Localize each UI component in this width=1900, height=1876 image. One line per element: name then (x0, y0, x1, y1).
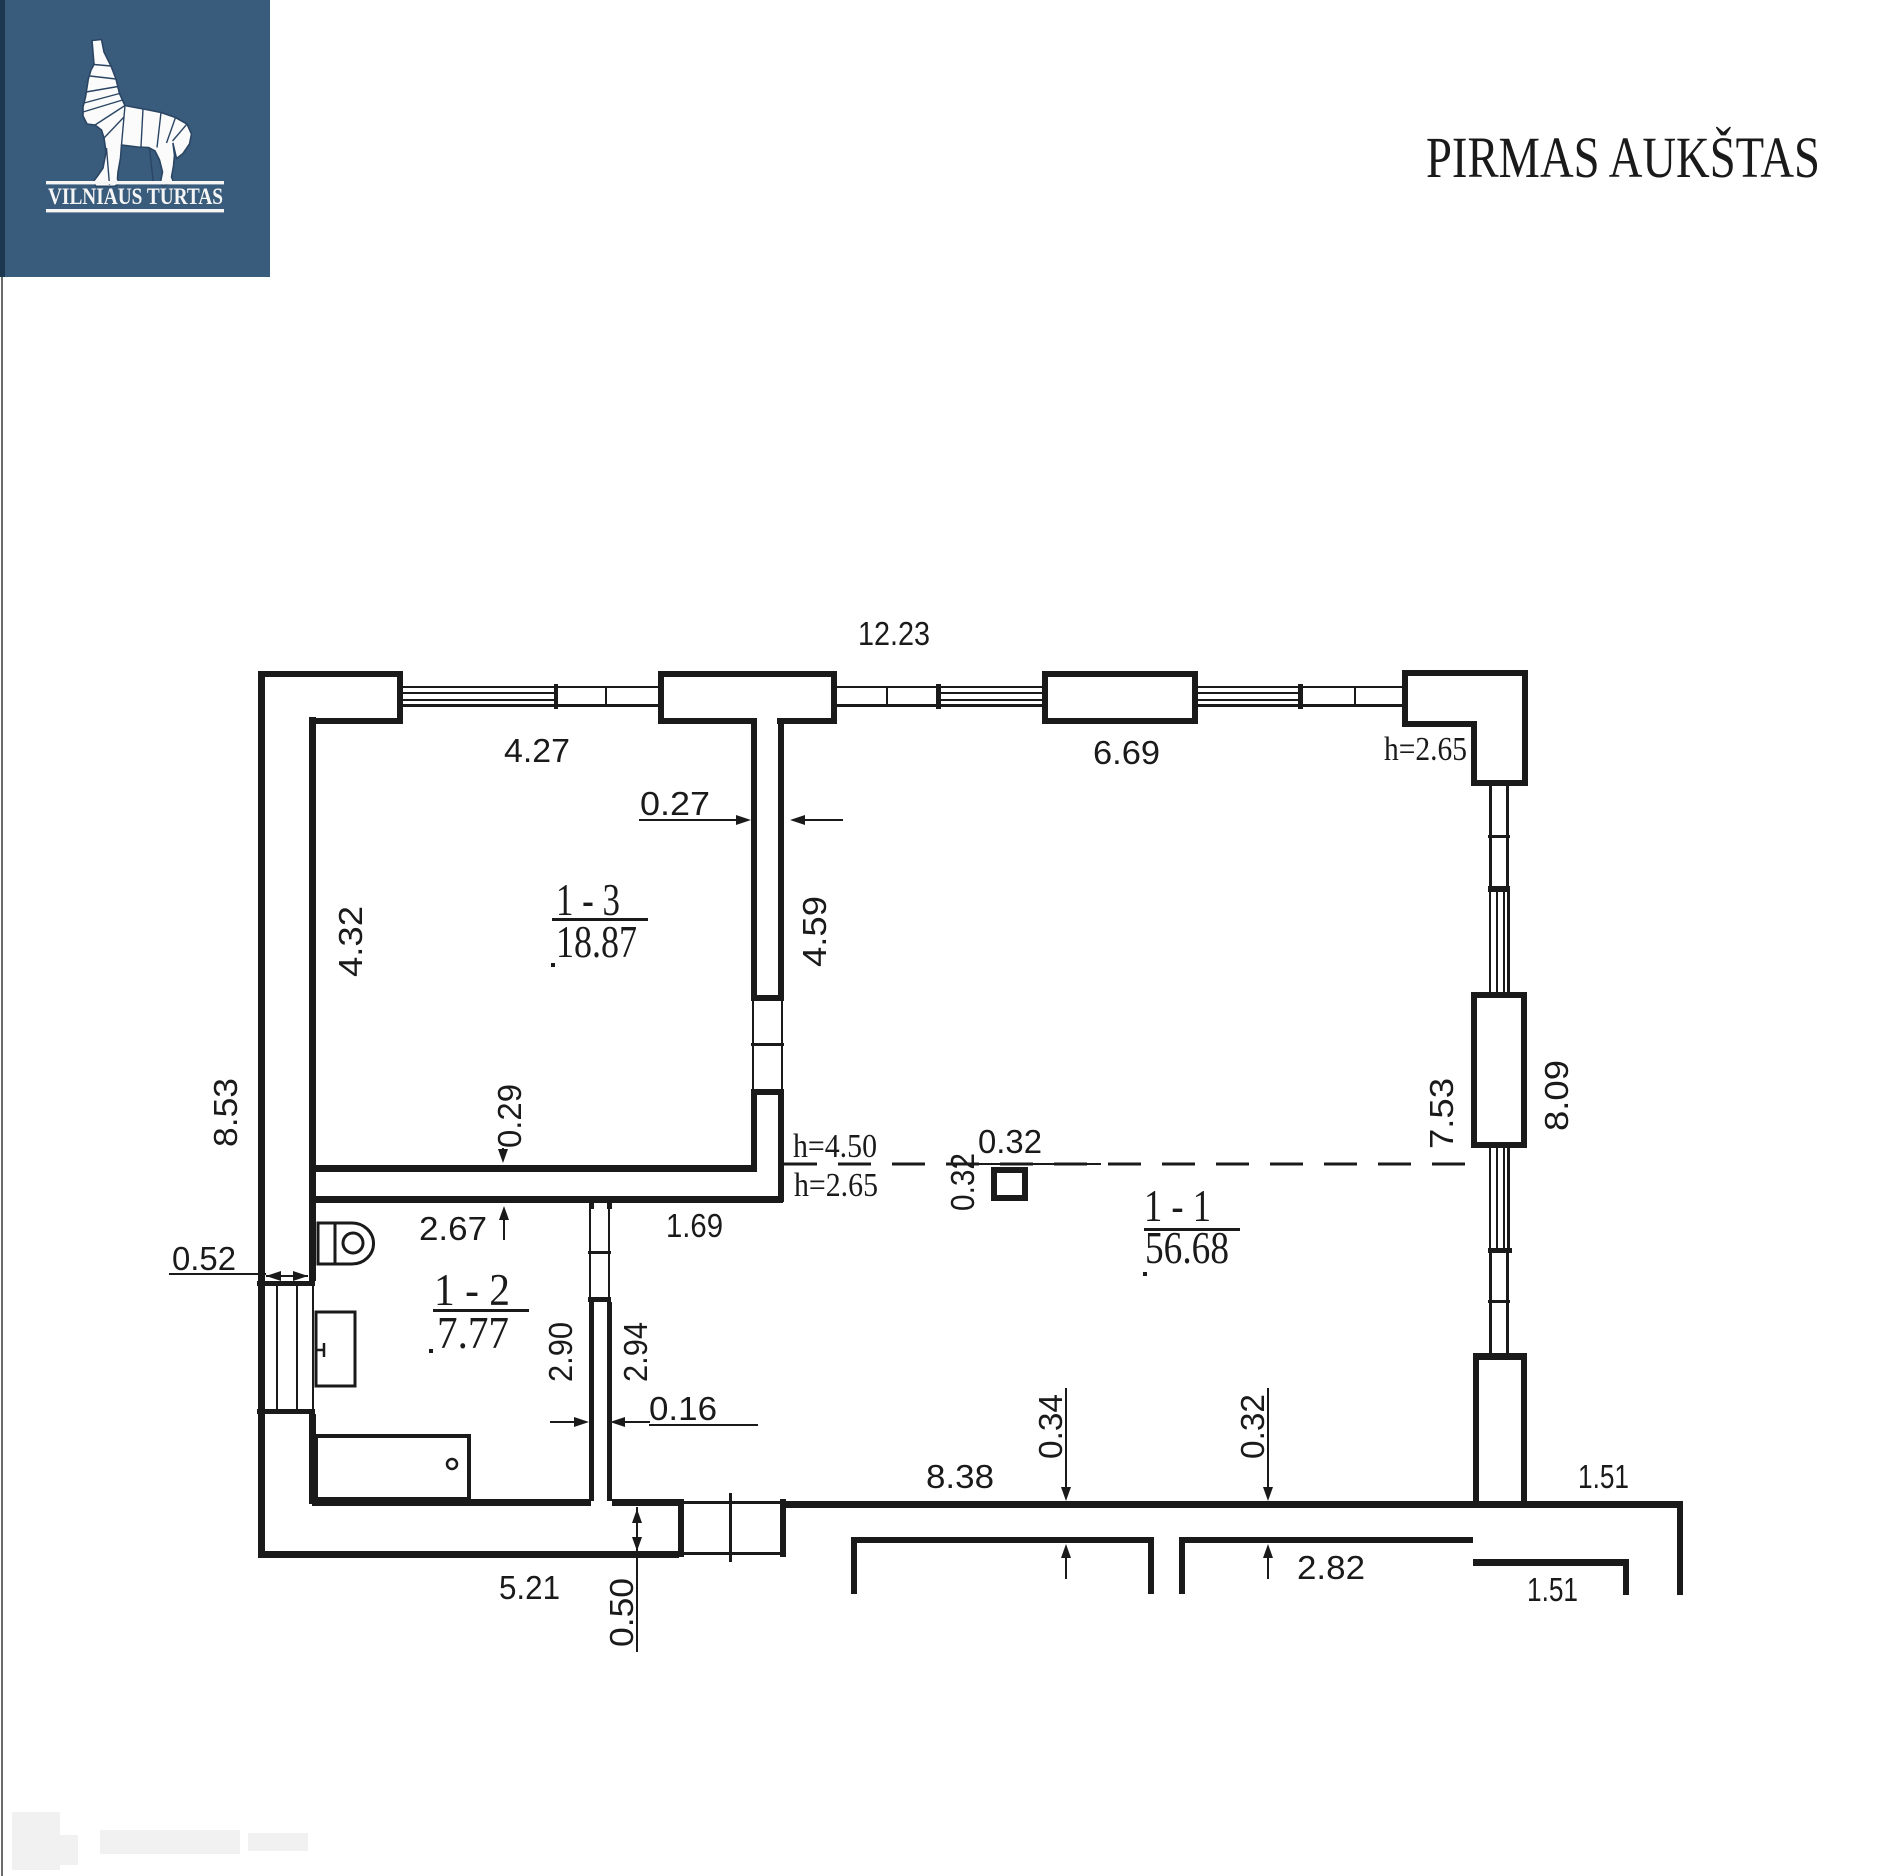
svg-text:7.77: 7.77 (437, 1308, 509, 1358)
svg-text:8.53: 8.53 (207, 1078, 244, 1147)
svg-text:4.32: 4.32 (332, 906, 369, 977)
svg-text:8.38: 8.38 (926, 1458, 994, 1495)
svg-text:5.21: 5.21 (499, 1569, 560, 1606)
svg-text:0.34: 0.34 (1032, 1394, 1069, 1459)
svg-text:7.53: 7.53 (1423, 1078, 1460, 1149)
svg-text:0.32: 0.32 (978, 1123, 1042, 1160)
svg-text:0.32: 0.32 (944, 1153, 981, 1211)
svg-text:2.90: 2.90 (542, 1322, 579, 1382)
svg-text:56.68: 56.68 (1145, 1223, 1229, 1273)
svg-text:2.67: 2.67 (419, 1210, 487, 1247)
svg-text:0.29: 0.29 (491, 1084, 528, 1148)
svg-text:0.50: 0.50 (603, 1578, 640, 1647)
svg-text:1.69: 1.69 (666, 1207, 723, 1244)
svg-text:8.09: 8.09 (1538, 1060, 1575, 1131)
svg-text:4.59: 4.59 (796, 896, 833, 967)
svg-text:VILNIAUS TURTAS: VILNIAUS TURTAS (48, 184, 223, 209)
svg-text:h=2.65: h=2.65 (794, 1167, 878, 1204)
svg-text:2.94: 2.94 (617, 1322, 654, 1382)
svg-text:h=2.65: h=2.65 (1384, 731, 1467, 768)
svg-text:PIRMAS AUKŠTAS: PIRMAS AUKŠTAS (1426, 125, 1820, 190)
svg-text:1.51: 1.51 (1527, 1571, 1578, 1608)
svg-text:2.82: 2.82 (1297, 1549, 1365, 1586)
svg-text:1.51: 1.51 (1578, 1458, 1629, 1495)
svg-text:0.32: 0.32 (1234, 1394, 1271, 1459)
svg-text:18.87: 18.87 (556, 917, 637, 967)
svg-text:h=4.50: h=4.50 (793, 1128, 877, 1165)
svg-text:4.27: 4.27 (504, 732, 570, 769)
svg-text:0.52: 0.52 (172, 1240, 236, 1277)
svg-text:12.23: 12.23 (858, 615, 930, 652)
svg-text:6.69: 6.69 (1093, 734, 1160, 771)
svg-text:0.27: 0.27 (640, 785, 710, 822)
svg-text:0.16: 0.16 (649, 1390, 717, 1427)
